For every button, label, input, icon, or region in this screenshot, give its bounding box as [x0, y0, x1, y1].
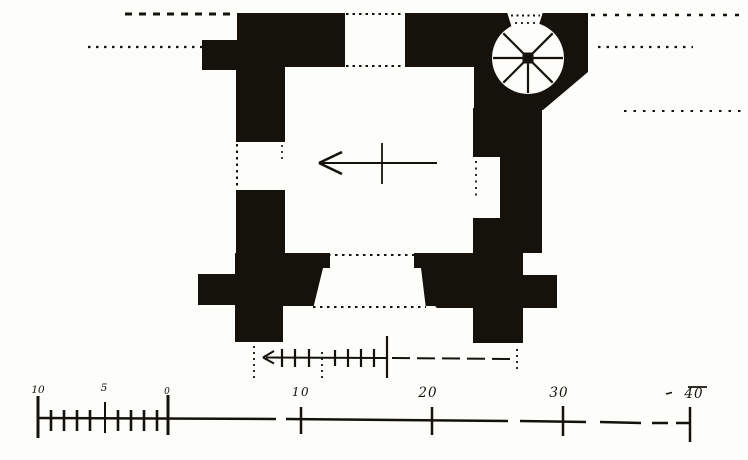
west-wall-lower [236, 190, 285, 253]
north-window [346, 14, 404, 66]
north-wall-west [237, 13, 345, 67]
west-window [237, 144, 282, 189]
stair-newel-post [523, 53, 534, 64]
scale-label-10: 10 [292, 385, 310, 399]
southeast-turret-bar [418, 275, 557, 308]
scale-label-0: 0 [164, 387, 170, 397]
tower-floor-plan-page: 10 5 0 10 20 30 40 [0, 0, 748, 460]
west-wall-upper [236, 67, 285, 142]
small-scale-line-dashed [392, 358, 514, 359]
southwest-turret-bar [198, 274, 283, 305]
scale-label-5: 5 [101, 382, 108, 394]
scale-label-left-10: 10 [31, 384, 45, 396]
tower-plan-drawing: 10 5 0 10 20 30 40 [0, 0, 748, 460]
main-scale-baseline [38, 418, 690, 423]
east-wall-outer-skin [500, 157, 542, 218]
scale-label-30: 30 [549, 385, 568, 401]
main-scale-bar: 10 5 0 10 20 30 40 [31, 382, 707, 442]
scale-label-40: 40 [683, 386, 703, 402]
small-scale-line-solid [266, 358, 388, 359]
stair-entrance-notch [507, 12, 543, 28]
east-wall-lower [473, 218, 542, 253]
east-wall-upper [473, 108, 542, 157]
direction-arrow [319, 143, 437, 184]
scale-label-40-stray-dash [666, 393, 672, 395]
scale-label-20: 20 [417, 385, 437, 401]
northwest-buttress [202, 40, 237, 70]
